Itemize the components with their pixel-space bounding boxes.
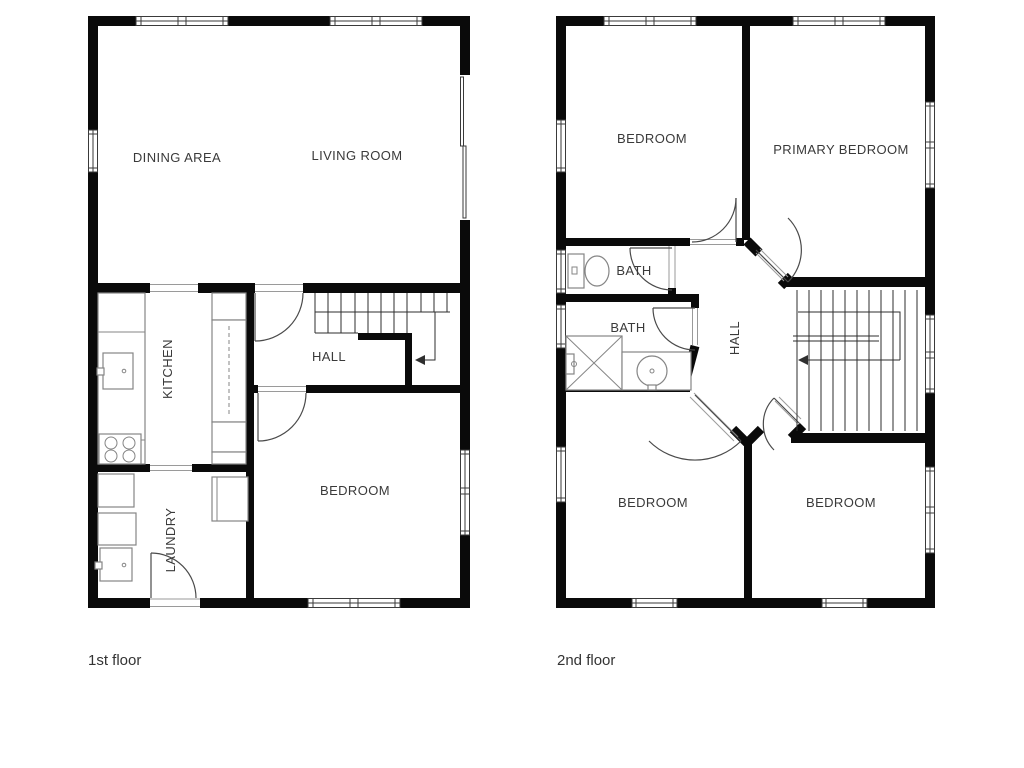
door-swing: [653, 308, 695, 350]
room-labels: DINING AREA LIVING ROOM KITCHEN HALL BED…: [133, 148, 403, 572]
room-label-bath-upper: BATH: [616, 263, 651, 278]
shower-icon: [566, 336, 622, 390]
room-label-bedroom-br: BEDROOM: [806, 495, 876, 510]
window-icon: [926, 102, 935, 188]
room-label-hall-1: HALL: [312, 349, 346, 364]
laundry-sink-icon: [95, 548, 132, 581]
stove-icon: [99, 434, 141, 464]
door-swing: [258, 393, 306, 441]
appliance-icon: [212, 477, 248, 521]
window-icon: [822, 599, 867, 608]
room-label-hall-2: HALL: [727, 321, 742, 355]
window-icon: [604, 17, 696, 26]
room-label-bedroom-tl: BEDROOM: [617, 131, 687, 146]
caption-2nd-floor: 2nd floor: [557, 652, 615, 669]
floor-plan-page: DINING AREA LIVING ROOM KITCHEN HALL BED…: [0, 0, 1024, 768]
door-swing: [756, 218, 801, 282]
window-icon: [89, 130, 98, 172]
room-label-kitchen: KITCHEN: [160, 339, 175, 399]
window-icon: [557, 250, 566, 293]
toilet-icon: [568, 254, 609, 288]
room-label-bedroom-bl: BEDROOM: [618, 495, 688, 510]
window-icon: [461, 450, 470, 535]
stairs: [793, 290, 917, 431]
stairs-direction-arrow: [415, 312, 435, 365]
room-label-laundry: LAUNDRY: [163, 508, 178, 573]
floor-plan-2nd-floor: BEDROOM PRIMARY BEDROOM BATH BATH HALL B…: [548, 8, 948, 618]
caption-1st-floor: 1st floor: [88, 652, 141, 669]
floor-plan-1st-floor: DINING AREA LIVING ROOM KITCHEN HALL BED…: [80, 8, 480, 618]
door-swing: [649, 395, 741, 460]
window-icon: [926, 315, 935, 393]
window-icon: [557, 305, 566, 348]
door-swing: [255, 293, 303, 341]
window-icon: [557, 120, 566, 172]
sliding-door-icon: [457, 75, 470, 220]
window-icon: [793, 17, 885, 26]
sink-icon: [97, 353, 133, 389]
bathroom-sink-icon: [622, 352, 691, 390]
stairs-direction-arrow: [798, 355, 900, 365]
window-icon: [926, 467, 935, 553]
doors: [630, 198, 801, 460]
window-icon: [557, 447, 566, 502]
window-icon: [136, 17, 228, 26]
door-swing: [692, 198, 736, 242]
window-icon: [632, 599, 677, 608]
room-label-primary-bedroom: PRIMARY BEDROOM: [773, 142, 909, 157]
room-label-living: LIVING ROOM: [311, 148, 402, 163]
room-label-dining: DINING AREA: [133, 150, 221, 165]
room-label-bath-lower: BATH: [610, 320, 645, 335]
room-label-bedroom-1: BEDROOM: [320, 483, 390, 498]
window-icon: [308, 599, 400, 608]
window-icon: [330, 17, 422, 26]
